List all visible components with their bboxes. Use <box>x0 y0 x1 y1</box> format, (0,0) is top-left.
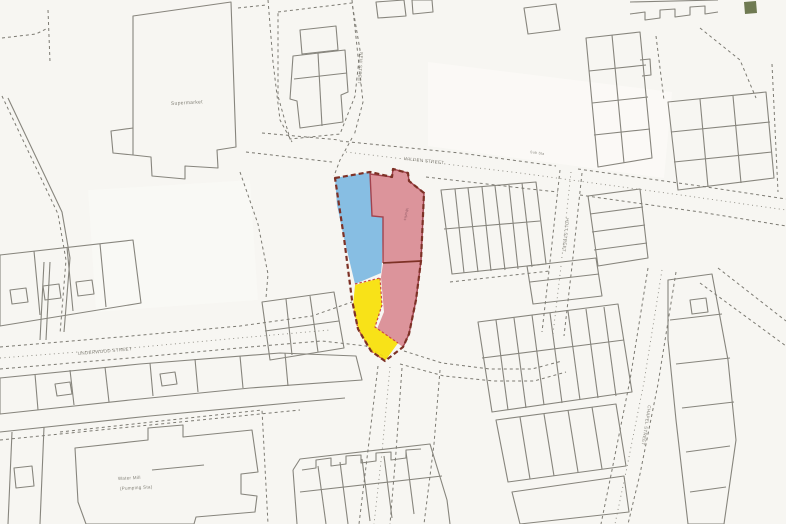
site-location-plan: SupermarketWILDEN STREETUNDERWOOD STREET… <box>0 0 786 524</box>
bright-patch-center-left <box>88 180 258 312</box>
map-canvas: SupermarketWILDEN STREETUNDERWOOD STREET… <box>0 0 786 524</box>
green-building-block <box>744 1 757 14</box>
substation-block <box>744 1 757 14</box>
